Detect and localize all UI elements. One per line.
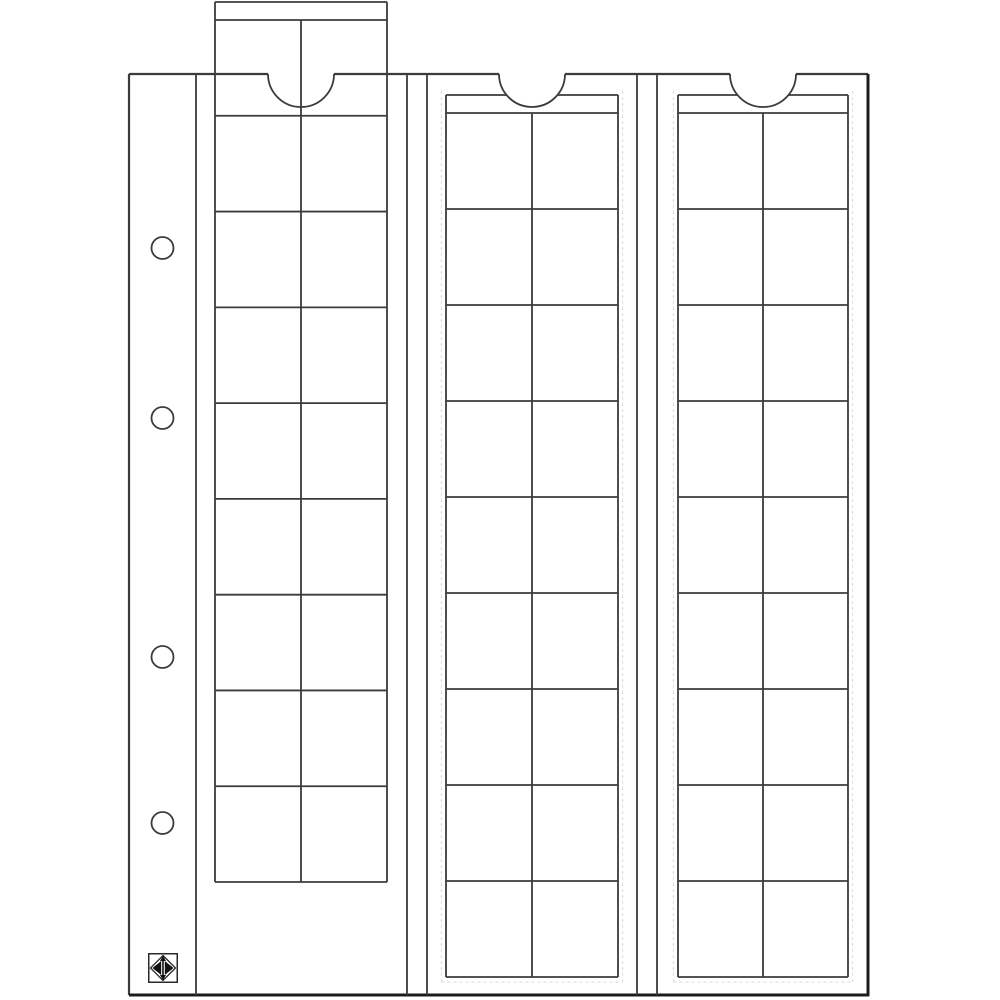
binder-hole — [152, 812, 174, 834]
brand-logo — [149, 954, 178, 983]
binder-hole — [152, 237, 174, 259]
page-background — [0, 0, 1000, 1000]
sheet-line-drawing — [0, 0, 1000, 1000]
binder-hole — [152, 407, 174, 429]
coin-sheet-drawing — [0, 0, 1000, 1000]
binder-hole — [152, 646, 174, 668]
